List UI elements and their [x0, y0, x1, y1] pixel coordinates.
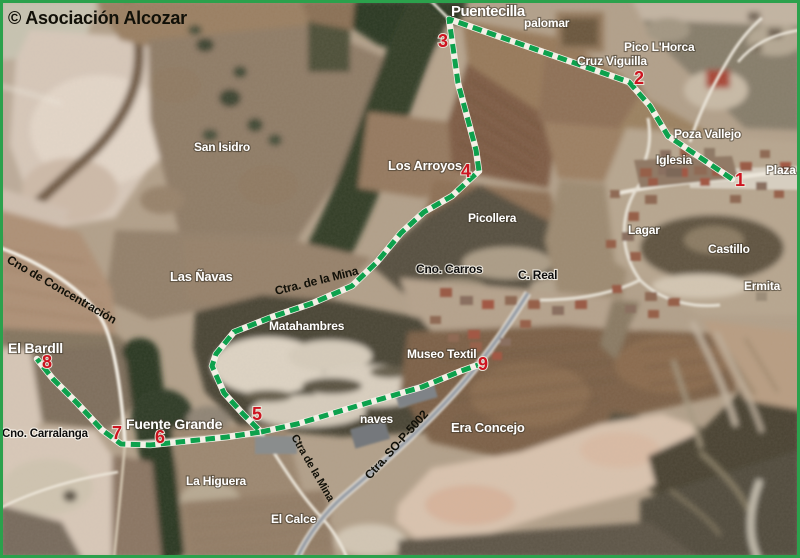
svg-text:Plaza: Plaza: [766, 163, 796, 177]
svg-text:El Bardll: El Bardll: [8, 340, 63, 356]
svg-text:palomar: palomar: [524, 16, 570, 30]
svg-text:La Higuera: La Higuera: [186, 474, 247, 488]
svg-text:7: 7: [112, 423, 122, 443]
svg-text:Puentecilla: Puentecilla: [451, 3, 526, 20]
svg-text:Museo Textil: Museo Textil: [407, 347, 476, 361]
svg-text:9: 9: [478, 354, 488, 374]
svg-text:San Isidro: San Isidro: [194, 140, 250, 154]
svg-text:5: 5: [252, 404, 262, 424]
svg-text:Las Ñavas: Las Ñavas: [170, 269, 233, 284]
svg-text:Iglesia: Iglesia: [656, 153, 692, 167]
svg-text:Los Arroyos: Los Arroyos: [388, 158, 462, 173]
svg-text:Poza Vallejo: Poza Vallejo: [674, 127, 741, 141]
svg-text:Ermita: Ermita: [744, 279, 781, 293]
svg-text:3: 3: [438, 31, 448, 51]
svg-text:1: 1: [735, 170, 745, 190]
svg-text:Cno. Carros: Cno. Carros: [416, 262, 483, 276]
svg-text:Cno. Carralanga: Cno. Carralanga: [2, 428, 89, 440]
svg-text:Matahambres: Matahambres: [269, 319, 345, 333]
svg-text:Picollera: Picollera: [468, 211, 517, 225]
svg-text:naves: naves: [360, 412, 394, 426]
svg-text:C. Real: C. Real: [518, 268, 557, 282]
svg-text:© Asociación Alcozar: © Asociación Alcozar: [8, 8, 187, 28]
svg-text:El Calce: El Calce: [271, 512, 317, 526]
svg-text:Lagar: Lagar: [628, 223, 660, 237]
svg-text:4: 4: [461, 161, 471, 181]
svg-text:2: 2: [634, 68, 644, 88]
svg-text:Castillo: Castillo: [708, 242, 750, 256]
svg-text:Era Concejo: Era Concejo: [451, 420, 525, 435]
svg-text:Cruz Viguilla: Cruz Viguilla: [577, 54, 647, 68]
svg-text:Pico L'Horca: Pico L'Horca: [624, 40, 695, 54]
svg-text:Fuente Grande: Fuente Grande: [126, 416, 223, 432]
